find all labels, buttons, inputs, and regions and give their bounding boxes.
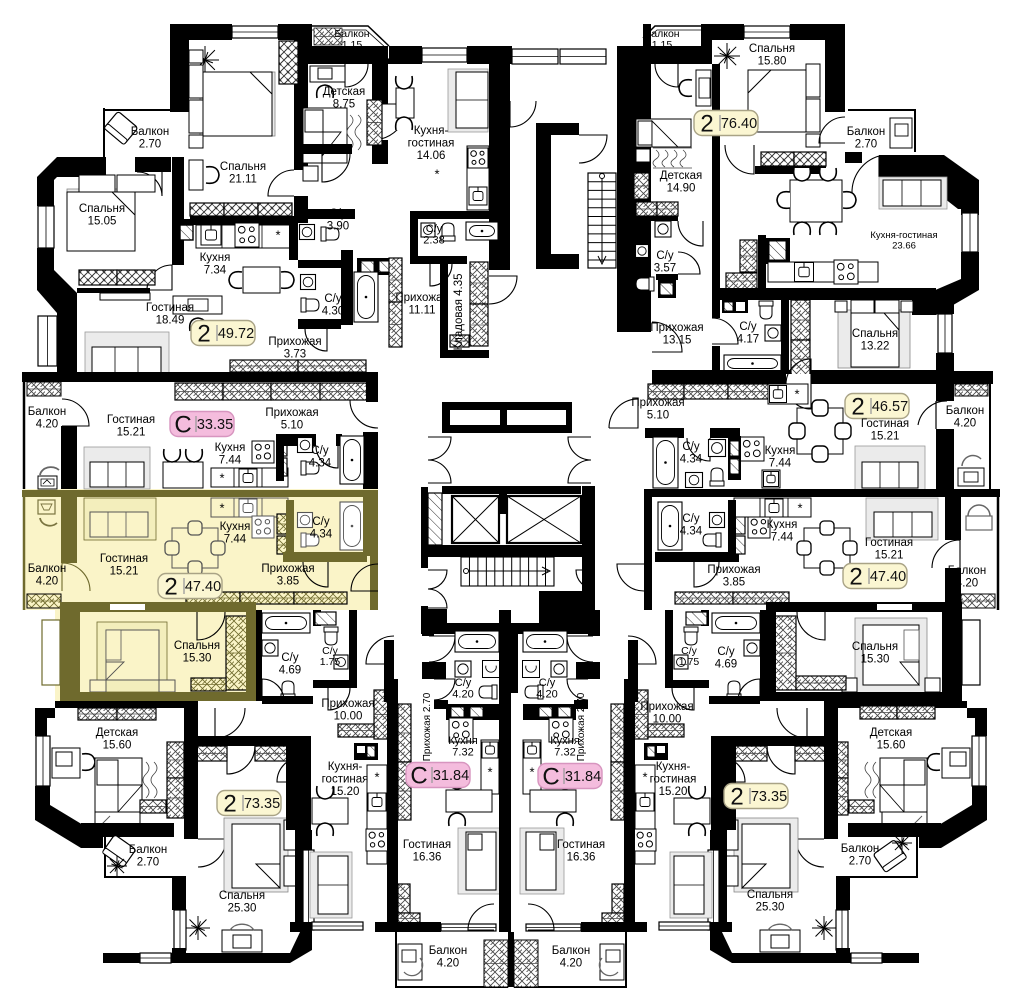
svg-text:15.21: 15.21 — [117, 427, 146, 439]
svg-text:2: 2 — [700, 111, 713, 138]
svg-text:Кладовая 4.35: Кладовая 4.35 — [453, 273, 465, 350]
svg-text:4.20: 4.20 — [954, 418, 976, 430]
svg-text:15.80: 15.80 — [758, 56, 787, 68]
svg-text:Прихожая: Прихожая — [640, 701, 693, 713]
svg-text:С/у: С/у — [682, 441, 700, 453]
svg-text:*: * — [434, 167, 439, 182]
svg-text:*: * — [219, 471, 224, 486]
svg-text:Гостиная: Гостиная — [107, 414, 155, 426]
svg-text:2: 2 — [851, 394, 864, 421]
svg-text:Прихожая: Прихожая — [321, 698, 374, 710]
svg-text:Прихожая: Прихожая — [631, 397, 684, 409]
svg-text:Кухня: Кухня — [200, 252, 231, 264]
svg-text:2: 2 — [223, 791, 236, 818]
svg-text:16.36: 16.36 — [413, 852, 442, 864]
svg-text:4.20: 4.20 — [560, 958, 582, 970]
svg-text:15.60: 15.60 — [103, 740, 132, 752]
svg-text:*: * — [275, 228, 280, 243]
svg-text:*: * — [797, 501, 802, 516]
svg-text:Балкон: Балкон — [129, 844, 168, 856]
svg-text:*: * — [642, 770, 647, 785]
svg-text:*: * — [219, 501, 224, 516]
svg-text:Кухня: Кухня — [448, 735, 477, 747]
svg-text:4.34: 4.34 — [310, 529, 333, 541]
svg-text:3.73: 3.73 — [284, 349, 306, 361]
svg-text:Балкон: Балкон — [131, 126, 170, 138]
svg-text:Детская: Детская — [323, 86, 366, 98]
svg-text:*: * — [794, 387, 799, 402]
svg-text:Балкон: Балкон — [847, 126, 886, 138]
svg-text:С/у: С/у — [539, 677, 556, 689]
svg-text:Гостиная: Гостиная — [146, 302, 194, 314]
svg-text:Спальня: Спальня — [219, 890, 265, 902]
svg-text:Спальня: Спальня — [174, 640, 220, 652]
svg-text:3.85: 3.85 — [277, 576, 299, 588]
svg-text:Кухня: Кухня — [220, 521, 251, 533]
svg-text:1.75: 1.75 — [679, 656, 700, 668]
svg-text:3.90: 3.90 — [327, 221, 349, 233]
svg-text:7.44: 7.44 — [224, 534, 247, 546]
svg-text:Балкон: Балкон — [841, 843, 880, 855]
svg-text:4.17: 4.17 — [737, 334, 759, 346]
svg-text:25.30: 25.30 — [228, 903, 257, 915]
svg-text:Спальня: Спальня — [749, 43, 795, 55]
svg-text:4.20: 4.20 — [36, 419, 58, 431]
svg-text:С/у: С/у — [455, 677, 472, 689]
svg-text:4.20: 4.20 — [956, 578, 978, 590]
svg-text:11.11: 11.11 — [408, 305, 435, 317]
svg-text:Кухня: Кухня — [765, 445, 796, 457]
svg-text:Гостиная: Гостиная — [865, 537, 913, 549]
svg-text:2.70: 2.70 — [849, 856, 871, 868]
svg-text:15.60: 15.60 — [877, 740, 906, 752]
svg-text:Спальня: Спальня — [79, 203, 125, 215]
svg-text:23.66: 23.66 — [892, 241, 916, 252]
svg-text:4.20: 4.20 — [36, 576, 58, 588]
svg-text:15.20: 15.20 — [331, 786, 360, 798]
svg-text:Спальня: Спальня — [852, 641, 898, 653]
svg-text:46.57: 46.57 — [872, 399, 908, 415]
svg-text:Балкон: Балкон — [429, 945, 468, 957]
svg-text:4.34: 4.34 — [680, 454, 703, 466]
svg-text:31.84: 31.84 — [565, 769, 601, 785]
svg-text:Прихожая: Прихожая — [395, 292, 448, 304]
svg-text:3.85: 3.85 — [723, 577, 745, 589]
svg-text:С/у: С/у — [717, 646, 735, 658]
svg-text:Детская: Детская — [660, 170, 703, 182]
svg-text:14.90: 14.90 — [667, 183, 696, 195]
svg-text:5.10: 5.10 — [647, 410, 669, 422]
svg-text:4.30: 4.30 — [322, 306, 344, 318]
svg-text:33.35: 33.35 — [197, 417, 233, 433]
svg-text:76.40: 76.40 — [721, 116, 757, 132]
svg-text:25.30: 25.30 — [756, 902, 785, 914]
svg-text:С/у: С/у — [656, 250, 674, 262]
svg-text:С/у: С/у — [739, 321, 757, 333]
svg-text:1.75: 1.75 — [320, 656, 341, 668]
svg-text:гостиная: гостиная — [650, 774, 697, 786]
svg-text:Кухня: Кухня — [767, 519, 798, 531]
svg-text:47.40: 47.40 — [185, 579, 221, 595]
svg-text:15.21: 15.21 — [110, 566, 139, 578]
svg-text:3.57: 3.57 — [654, 263, 676, 275]
svg-text:Прихожая 2.70: Прихожая 2.70 — [576, 692, 587, 761]
svg-text:15.20: 15.20 — [659, 786, 688, 798]
svg-text:4.20: 4.20 — [452, 689, 473, 701]
svg-text:Кухня-: Кухня- — [656, 761, 691, 773]
svg-text:7.32: 7.32 — [554, 747, 575, 759]
svg-text:Кухня-гостиная: Кухня-гостиная — [870, 230, 937, 241]
svg-text:10.00: 10.00 — [653, 714, 682, 726]
svg-text:Балкон: Балкон — [552, 945, 591, 957]
svg-text:47.40: 47.40 — [870, 569, 906, 585]
svg-text:*: * — [529, 765, 534, 780]
svg-text:Гостиная: Гостиная — [100, 553, 148, 565]
svg-text:73.35: 73.35 — [751, 789, 787, 805]
svg-text:Прихожая: Прихожая — [265, 407, 318, 419]
svg-text:7.44: 7.44 — [769, 458, 792, 470]
svg-text:7.34: 7.34 — [204, 265, 227, 277]
svg-text:Прихожая: Прихожая — [650, 322, 703, 334]
svg-text:4.20: 4.20 — [437, 958, 459, 970]
svg-text:Детская: Детская — [96, 727, 139, 739]
svg-text:73.35: 73.35 — [244, 796, 280, 812]
svg-text:18.49: 18.49 — [156, 315, 185, 327]
svg-text:Гостиная: Гостиная — [557, 839, 605, 851]
svg-text:гостиная: гостиная — [408, 138, 455, 150]
svg-text:5.10: 5.10 — [281, 420, 303, 432]
svg-text:1.15: 1.15 — [652, 39, 673, 51]
svg-text:4.20: 4.20 — [536, 689, 557, 701]
svg-text:8.75: 8.75 — [333, 99, 355, 111]
svg-text:Спальня: Спальня — [852, 328, 898, 340]
svg-text:Балкон: Балкон — [28, 563, 67, 575]
svg-text:Гостиная: Гостиная — [861, 418, 909, 430]
svg-text:4.34: 4.34 — [680, 526, 703, 538]
svg-text:Прихожая: Прихожая — [261, 563, 314, 575]
svg-text:Балкон: Балкон — [28, 406, 67, 418]
svg-text:2.38: 2.38 — [423, 235, 444, 247]
svg-text:Спальня: Спальня — [220, 161, 266, 173]
svg-text:15.21: 15.21 — [871, 431, 900, 443]
svg-text:4.69: 4.69 — [715, 659, 737, 671]
svg-text:С/у: С/у — [312, 516, 330, 528]
svg-text:Гостиная: Гостиная — [403, 839, 451, 851]
svg-text:2: 2 — [164, 574, 177, 601]
svg-text:21.11: 21.11 — [229, 174, 257, 186]
svg-text:С/у: С/у — [281, 652, 299, 664]
svg-text:C: C — [410, 763, 427, 790]
svg-text:C: C — [174, 412, 191, 439]
svg-text:Детская: Детская — [870, 727, 913, 739]
svg-text:1.15: 1.15 — [342, 39, 363, 51]
svg-text:С/у: С/у — [426, 223, 443, 235]
svg-text:2: 2 — [849, 564, 862, 591]
svg-text:7.44: 7.44 — [219, 455, 242, 467]
svg-text:Балкон: Балкон — [946, 405, 985, 417]
svg-text:2: 2 — [730, 784, 743, 811]
svg-text:13.15: 13.15 — [663, 335, 692, 347]
svg-text:15.30: 15.30 — [861, 654, 890, 666]
svg-text:15.30: 15.30 — [183, 653, 212, 665]
svg-text:7.44: 7.44 — [771, 532, 794, 544]
svg-text:C: C — [542, 764, 559, 791]
svg-text:31.84: 31.84 — [433, 768, 469, 784]
svg-text:2.70: 2.70 — [137, 857, 159, 869]
svg-text:С/у: С/у — [682, 513, 700, 525]
svg-text:Прихожая: Прихожая — [268, 336, 321, 348]
svg-text:7.32: 7.32 — [452, 747, 473, 759]
svg-text:15.05: 15.05 — [88, 216, 117, 228]
svg-text:С/у: С/у — [329, 208, 347, 220]
svg-text:13.22: 13.22 — [861, 341, 890, 353]
svg-text:16.36: 16.36 — [567, 852, 596, 864]
svg-text:Кухня: Кухня — [215, 442, 246, 454]
svg-text:15.21: 15.21 — [875, 550, 904, 562]
svg-text:гостиная: гостиная — [322, 774, 369, 786]
svg-text:2.70: 2.70 — [139, 139, 161, 151]
svg-text:2.70: 2.70 — [855, 139, 877, 151]
svg-text:Балкон: Балкон — [948, 565, 987, 577]
svg-text:*: * — [487, 765, 492, 780]
svg-text:Кухня-: Кухня- — [328, 761, 363, 773]
svg-text:С/у: С/у — [324, 293, 342, 305]
svg-text:14.06: 14.06 — [417, 150, 446, 162]
svg-text:Спальня: Спальня — [747, 889, 793, 901]
svg-text:49.72: 49.72 — [218, 326, 254, 342]
svg-text:Прихожая 2.70: Прихожая 2.70 — [422, 692, 433, 761]
svg-text:Кухня: Кухня — [550, 735, 579, 747]
svg-text:4.34: 4.34 — [309, 458, 332, 470]
svg-text:10.00: 10.00 — [334, 711, 363, 723]
svg-text:Прихожая: Прихожая — [707, 564, 760, 576]
svg-text:4.69: 4.69 — [279, 665, 301, 677]
svg-text:С/у: С/у — [311, 445, 329, 457]
svg-text:Кухня-: Кухня- — [414, 125, 449, 137]
svg-text:*: * — [374, 770, 379, 785]
svg-text:2: 2 — [197, 321, 210, 348]
